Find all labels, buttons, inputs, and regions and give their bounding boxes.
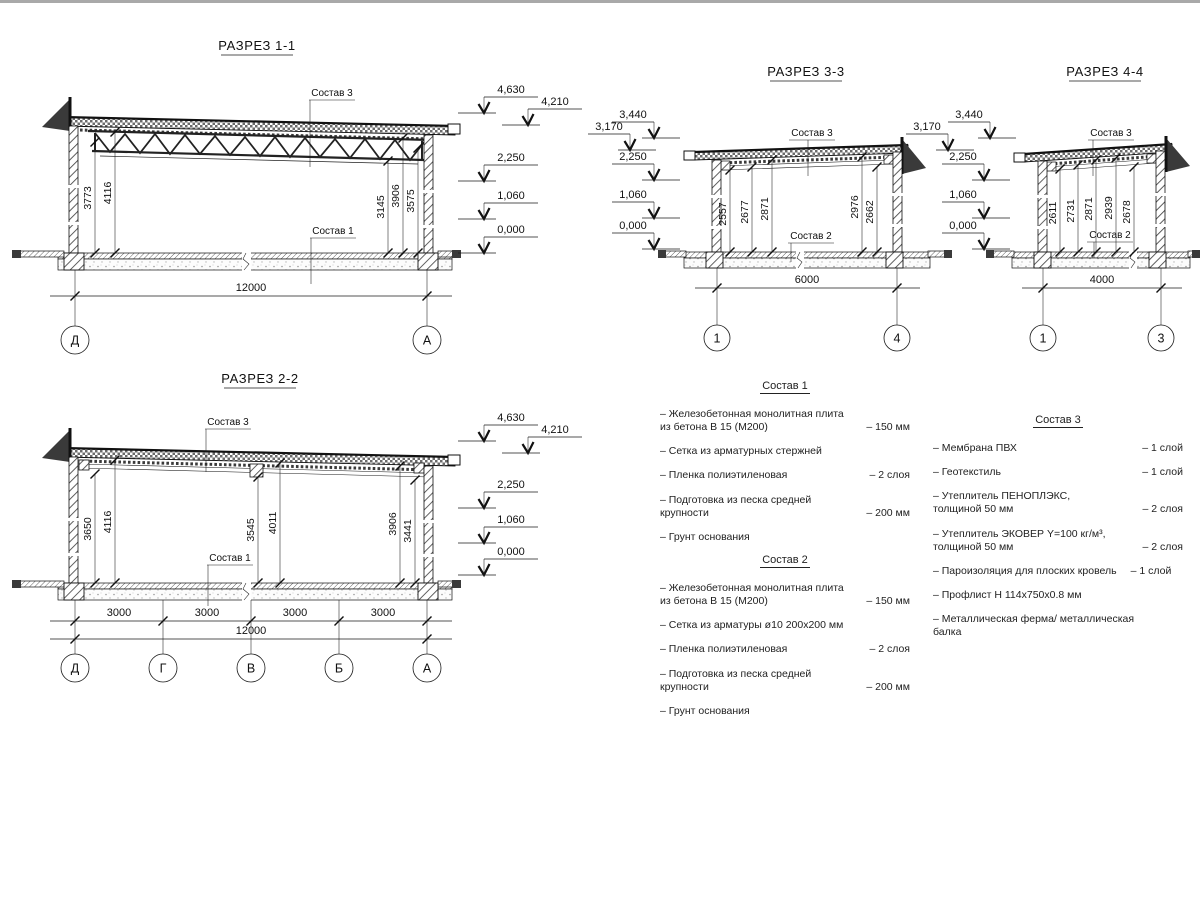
parapet-flashing-4-4 bbox=[1166, 138, 1190, 172]
svg-text:4,630: 4,630 bbox=[497, 412, 525, 424]
comp-item-text: – Сетка из арматуры ø10 200х200 мм bbox=[660, 619, 843, 632]
comp-item-value: – 1 слой bbox=[1131, 565, 1172, 578]
span-dim-3: 3000 bbox=[283, 607, 307, 619]
svg-text:2557: 2557 bbox=[717, 202, 729, 226]
elevation-0000: 0,000 bbox=[497, 224, 525, 236]
composition-1-title: Состав 1 bbox=[660, 380, 910, 392]
floor-slab-3-3 bbox=[658, 250, 952, 270]
bottom-dims-2-2: 3000 3000 3000 3000 12000 Д Г В Б А bbox=[50, 600, 452, 682]
parapet-flashing-1-1 bbox=[42, 99, 70, 131]
svg-text:3,440: 3,440 bbox=[619, 109, 647, 121]
list-item: – Пароизоляция для плоских кровель – 1 с… bbox=[933, 565, 1183, 578]
comp-item-value: – 150 мм bbox=[866, 595, 910, 608]
comp-item-text: – Сетка из арматурных стержней bbox=[660, 445, 822, 458]
section-4-4: РАЗРЕЗ 4-4 3,170 3,440 2,250 1,060 0,000 bbox=[906, 64, 1200, 351]
svg-text:Состав 3: Состав 3 bbox=[1090, 128, 1132, 139]
comp-item-value: – 2 слоя bbox=[1142, 503, 1183, 516]
svg-text:2678: 2678 bbox=[1121, 200, 1133, 224]
elevation-marks-4-4: 3,170 3,440 2,250 1,060 0,000 bbox=[906, 109, 1016, 249]
dim-12000-2: 12000 bbox=[236, 625, 267, 637]
dim-3650: 3650 bbox=[82, 517, 94, 541]
dim-3906: 3906 bbox=[390, 184, 402, 208]
elevation-1060: 1,060 bbox=[497, 190, 525, 202]
list-item: – Мембрана ПВХ – 1 слой bbox=[933, 442, 1183, 455]
svg-text:2731: 2731 bbox=[1065, 199, 1077, 223]
svg-text:1,060: 1,060 bbox=[497, 514, 525, 526]
svg-text:3,170: 3,170 bbox=[913, 121, 941, 133]
elevation-marks-3-3: 3,170 3,440 2,250 1,060 0,000 bbox=[588, 109, 680, 249]
list-item: – Утеплитель ПЕНОПЛЭКС, толщиной 50 мм –… bbox=[933, 490, 1183, 516]
comp-item-value: – 200 мм bbox=[866, 507, 910, 520]
axis-label-A: А bbox=[423, 334, 432, 348]
dim-6000: 6000 bbox=[795, 274, 819, 286]
floor-slab-4-4 bbox=[986, 250, 1200, 270]
dim-12000: 12000 bbox=[236, 282, 267, 294]
svg-text:2677: 2677 bbox=[739, 200, 751, 224]
list-item: – Подготовка из песка средней крупности … bbox=[660, 668, 910, 694]
composition-3-title: Состав 3 bbox=[933, 414, 1183, 426]
svg-text:1: 1 bbox=[1040, 332, 1047, 346]
elevation-4630: 4,630 bbox=[497, 84, 525, 96]
floor-slab-1-1 bbox=[12, 250, 461, 272]
comp-item-text: – Утеплитель ПЕНОПЛЭКС, толщиной 50 мм bbox=[933, 490, 1070, 516]
comp-item-text: – Железобетонная монолитная плита из бет… bbox=[660, 582, 844, 608]
svg-text:Состав 1: Состав 1 bbox=[209, 553, 251, 564]
comp-item-text: – Геотекстиль bbox=[933, 466, 1001, 479]
axis-label-D: Д bbox=[71, 334, 80, 348]
dim-3773: 3773 bbox=[82, 186, 94, 210]
svg-text:Состав 3: Состав 3 bbox=[311, 88, 353, 99]
beam-right bbox=[414, 463, 424, 473]
parapet-flashing-2-2 bbox=[42, 430, 70, 462]
section-3-3-title: РАЗРЕЗ 3-3 bbox=[767, 64, 845, 79]
list-item: – Профлист Н 114х750х0.8 мм bbox=[933, 589, 1183, 602]
list-item: – Утеплитель ЭКОВЕР Y=100 кг/м³, толщино… bbox=[933, 528, 1183, 554]
dim-3145: 3145 bbox=[375, 195, 387, 219]
svg-text:Состав 2: Состав 2 bbox=[1089, 230, 1131, 241]
svg-text:0,000: 0,000 bbox=[949, 220, 977, 232]
comp-item-value: – 2 слоя bbox=[869, 643, 910, 656]
svg-text:4: 4 bbox=[894, 332, 901, 346]
comp-item-text: – Мембрана ПВХ bbox=[933, 442, 1017, 455]
svg-text:В: В bbox=[247, 662, 255, 676]
svg-text:Состав 2: Состав 2 bbox=[790, 231, 832, 242]
svg-text:Д: Д bbox=[71, 662, 80, 676]
section-2-2-title: РАЗРЕЗ 2-2 bbox=[221, 371, 299, 386]
bottom-dim-1-1: 12000 Д А bbox=[50, 270, 452, 354]
svg-text:2,250: 2,250 bbox=[497, 479, 525, 491]
list-item: – Грунт основания bbox=[660, 705, 910, 718]
composition-list-2: Состав 2 – Железобетонная монолитная пли… bbox=[660, 554, 910, 729]
comp-item-value: – 150 мм bbox=[866, 421, 910, 434]
svg-text:1: 1 bbox=[714, 332, 721, 346]
svg-text:А: А bbox=[423, 662, 432, 676]
svg-text:2,250: 2,250 bbox=[949, 151, 977, 163]
svg-text:Состав 3: Состав 3 bbox=[207, 417, 249, 428]
svg-text:Б: Б bbox=[335, 662, 343, 676]
span-dim-1: 3000 bbox=[107, 607, 131, 619]
drawing-sheet: РАЗРЕЗ 1-1 Соста bbox=[0, 0, 1200, 900]
svg-text:Состав 1: Состав 1 bbox=[312, 226, 354, 237]
comp-item-text: – Грунт основания bbox=[660, 705, 750, 718]
svg-text:2939: 2939 bbox=[1103, 196, 1115, 220]
elevation-marks-2-2: 4,630 4,210 2,250 1,060 0,000 bbox=[458, 412, 582, 575]
dim-3575: 3575 bbox=[405, 189, 417, 213]
svg-text:2,250: 2,250 bbox=[619, 151, 647, 163]
svg-text:2662: 2662 bbox=[864, 200, 876, 224]
dim-3906-2: 3906 bbox=[387, 512, 399, 536]
dim-3441: 3441 bbox=[402, 519, 414, 543]
bottom-dim-3-3: 6000 1 4 bbox=[695, 268, 920, 351]
comp-item-text: – Пленка полиэтиленовая bbox=[660, 643, 787, 656]
composition-2-title: Состав 2 bbox=[660, 554, 910, 566]
beam-left bbox=[79, 460, 89, 470]
svg-text:3,170: 3,170 bbox=[595, 121, 623, 133]
list-item: – Железобетонная монолитная плита из бет… bbox=[660, 582, 910, 608]
composition-list-3: Состав 3 – Мембрана ПВХ – 1 слой – Геоте… bbox=[933, 414, 1183, 650]
comp-item-text: – Металлическая ферма/ металлическая бал… bbox=[933, 613, 1138, 639]
list-item: – Металлическая ферма/ металлическая бал… bbox=[933, 613, 1183, 639]
svg-text:3: 3 bbox=[1158, 332, 1165, 346]
section-1-1: РАЗРЕЗ 1-1 Соста bbox=[12, 38, 582, 354]
svg-text:Состав 3: Состав 3 bbox=[791, 128, 833, 139]
dim-4116: 4116 bbox=[102, 182, 114, 205]
comp-item-value: – 1 слой bbox=[1142, 442, 1183, 455]
list-item: – Пленка полиэтиленовая – 2 слоя bbox=[660, 643, 910, 656]
roof-1-1 bbox=[42, 97, 460, 139]
span-dim-4: 3000 bbox=[371, 607, 395, 619]
comp-item-text: – Подготовка из песка средней крупности bbox=[660, 494, 811, 520]
comp-item-text: – Пароизоляция для плоских кровель bbox=[933, 565, 1117, 578]
composition-list-1: Состав 1 – Железобетонная монолитная пли… bbox=[660, 380, 910, 555]
truss-1-1 bbox=[88, 131, 431, 164]
list-item: – Сетка из арматурных стержней bbox=[660, 445, 910, 458]
svg-text:0,000: 0,000 bbox=[619, 220, 647, 232]
svg-text:1,060: 1,060 bbox=[949, 189, 977, 201]
elevation-2250: 2,250 bbox=[497, 152, 525, 164]
section-2-2: РАЗРЕЗ 2-2 Состав 3 bbox=[12, 371, 582, 682]
svg-text:2871: 2871 bbox=[759, 197, 771, 221]
comp-item-text: – Подготовка из песка средней крупности bbox=[660, 668, 811, 694]
dim-4011: 4011 bbox=[267, 512, 279, 535]
list-item: – Пленка полиэтиленовая – 2 слоя bbox=[660, 469, 910, 482]
section-1-1-title: РАЗРЕЗ 1-1 bbox=[218, 38, 296, 53]
comp-item-text: – Железобетонная монолитная плита из бет… bbox=[660, 408, 844, 434]
comp-item-value: – 1 слой bbox=[1142, 466, 1183, 479]
section-3-3: РАЗРЕЗ 3-3 3,170 3,440 2,250 1,060 0,000 bbox=[588, 64, 952, 351]
beam-middle bbox=[250, 464, 263, 477]
bottom-dim-4-4: 4000 1 3 bbox=[1022, 268, 1182, 351]
svg-text:2976: 2976 bbox=[849, 195, 861, 219]
svg-text:4,210: 4,210 bbox=[541, 424, 569, 436]
comp-item-text: – Грунт основания bbox=[660, 531, 750, 544]
span-dim-2: 3000 bbox=[195, 607, 219, 619]
svg-text:0,000: 0,000 bbox=[497, 546, 525, 558]
svg-text:2611: 2611 bbox=[1047, 202, 1059, 225]
comp-item-value: – 2 слоя bbox=[869, 469, 910, 482]
list-item: – Железобетонная монолитная плита из бет… bbox=[660, 408, 910, 434]
elevation-marks-1-1: 4,630 4,210 2,250 1,060 0,000 bbox=[458, 84, 582, 253]
comp-item-text: – Профлист Н 114х750х0.8 мм bbox=[933, 589, 1082, 602]
dim-4116-2: 4116 bbox=[102, 511, 114, 534]
svg-text:3,440: 3,440 bbox=[955, 109, 983, 121]
comp-item-text: – Утеплитель ЭКОВЕР Y=100 кг/м³, толщино… bbox=[933, 528, 1106, 554]
elevation-4210: 4,210 bbox=[541, 96, 569, 108]
dim-4000: 4000 bbox=[1090, 274, 1114, 286]
svg-text:1,060: 1,060 bbox=[619, 189, 647, 201]
list-item: – Подготовка из песка средней крупности … bbox=[660, 494, 910, 520]
parapet-flashing-3-3 bbox=[902, 139, 926, 174]
comp-item-value: – 2 слоя bbox=[1142, 541, 1183, 554]
section-4-4-title: РАЗРЕЗ 4-4 bbox=[1066, 64, 1144, 79]
list-item: – Грунт основания bbox=[660, 531, 910, 544]
dim-3545: 3545 bbox=[245, 518, 257, 542]
floor-slab-2-2 bbox=[12, 580, 461, 602]
list-item: – Геотекстиль – 1 слой bbox=[933, 466, 1183, 479]
svg-text:2871: 2871 bbox=[1083, 197, 1095, 221]
svg-text:Г: Г bbox=[160, 662, 167, 676]
list-item: – Сетка из арматуры ø10 200х200 мм bbox=[660, 619, 910, 632]
comp-item-text: – Пленка полиэтиленовая bbox=[660, 469, 787, 482]
comp-item-value: – 200 мм bbox=[866, 681, 910, 694]
